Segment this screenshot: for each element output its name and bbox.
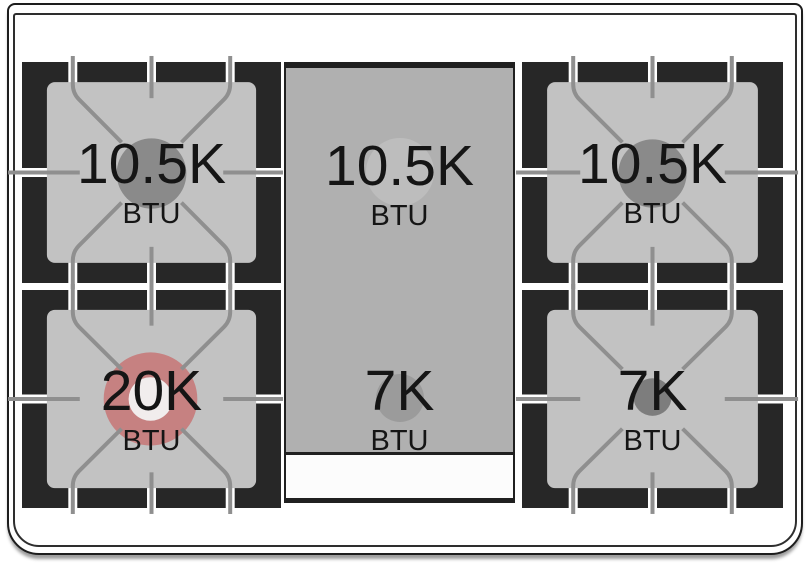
btu-value: 7K [522,363,783,420]
btu-value: 10.5K [22,136,281,193]
btu-unit: BTU [22,200,281,229]
burner-label-bottom-right: 7K BTU [522,363,783,456]
btu-value: 10.5K [522,136,783,193]
cooktop-top-view: 10.5K BTU 10.5K BTU 10.5K BTU 20K BTU 7K… [0,0,810,568]
btu-unit: BTU [284,427,515,456]
btu-unit: BTU [522,427,783,456]
burner-label-center-top: 10.5K BTU [284,138,515,231]
burner-label-bottom-left: 20K BTU [22,363,281,456]
btu-value: 7K [284,363,515,420]
burner-label-center-bottom: 7K BTU [284,363,515,456]
btu-unit: BTU [522,200,783,229]
btu-value: 10.5K [284,138,515,195]
btu-unit: BTU [22,427,281,456]
btu-value: 20K [22,363,281,420]
btu-unit: BTU [284,202,515,231]
burner-label-top-left: 10.5K BTU [22,136,281,229]
burner-label-top-right: 10.5K BTU [522,136,783,229]
